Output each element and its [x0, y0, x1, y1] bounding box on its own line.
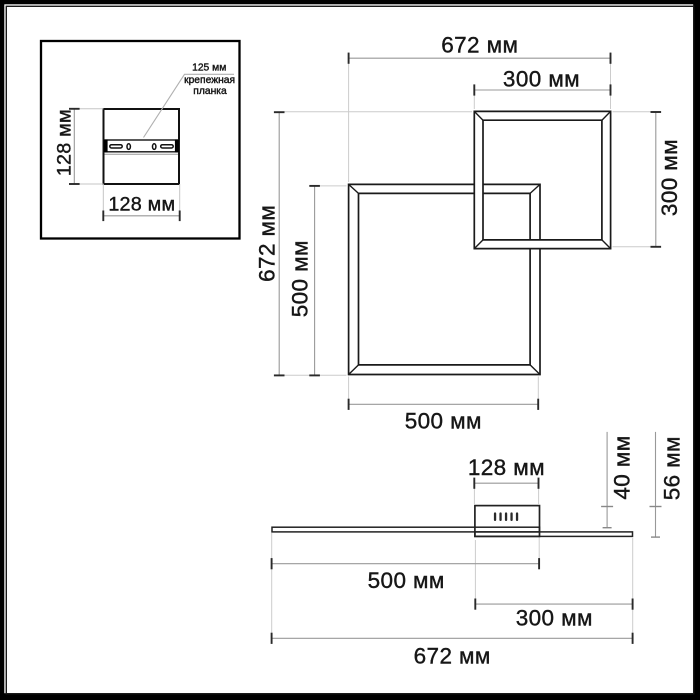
svg-text:300 мм: 300 мм — [516, 606, 593, 631]
svg-text:40 мм: 40 мм — [610, 435, 635, 499]
svg-text:672 мм: 672 мм — [254, 205, 279, 282]
svg-text:крепежная: крепежная — [184, 75, 235, 86]
svg-text:128 мм: 128 мм — [108, 194, 175, 216]
svg-text:300 мм: 300 мм — [503, 66, 580, 91]
svg-text:500 мм: 500 мм — [288, 240, 313, 317]
svg-text:672 мм: 672 мм — [414, 643, 491, 668]
svg-text:128 мм: 128 мм — [53, 109, 75, 176]
svg-text:128 мм: 128 мм — [468, 455, 545, 480]
svg-text:300 мм: 300 мм — [657, 139, 682, 216]
svg-text:планка: планка — [193, 86, 227, 97]
svg-text:500 мм: 500 мм — [405, 408, 482, 433]
svg-text:672 мм: 672 мм — [441, 33, 518, 58]
svg-text:500 мм: 500 мм — [368, 568, 445, 593]
svg-text:56 мм: 56 мм — [660, 436, 685, 500]
svg-text:125 мм: 125 мм — [192, 63, 226, 74]
